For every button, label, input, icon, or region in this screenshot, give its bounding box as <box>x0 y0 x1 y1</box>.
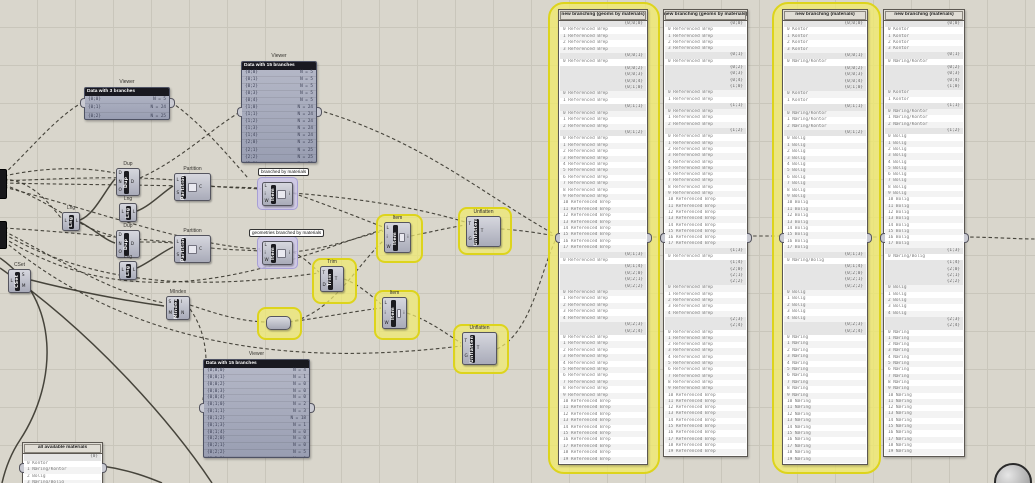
input-nub[interactable] <box>779 233 784 243</box>
component-partition-2[interactable]: Partition LSPartitionC <box>174 235 211 261</box>
wire[interactable] <box>140 242 173 243</box>
port-T[interactable]: T <box>465 339 468 344</box>
viewer-row: {0;0;0}N = 4 <box>204 368 309 375</box>
component-dup-1[interactable]: Dup DNODupD <box>116 168 140 194</box>
viewer-label: Viewer <box>241 53 317 59</box>
component-name: CSet <box>15 272 20 291</box>
viewer-row: {0;2;2}N = 5 <box>204 450 309 457</box>
port-i[interactable]: i <box>385 311 389 316</box>
port-i[interactable]: i <box>403 311 404 316</box>
wire[interactable] <box>4 169 115 176</box>
component-name: Dup <box>124 171 129 194</box>
viewer-row: {0;0;1}N = 1 <box>204 375 309 382</box>
port-N[interactable]: N <box>119 242 122 247</box>
component-item-2[interactable]: Item LiWItemi <box>382 297 407 327</box>
port-W[interactable]: W <box>265 199 269 204</box>
component-dup-2[interactable]: Dup DNODupD <box>116 230 140 256</box>
port-S[interactable]: S <box>177 253 180 258</box>
component-label: CSet <box>0 262 51 268</box>
component-name: Item <box>391 300 396 327</box>
port-D[interactable]: D <box>131 242 134 247</box>
port-T[interactable]: T <box>477 346 480 351</box>
wire[interactable] <box>4 228 173 242</box>
panel-title: all available materials <box>23 443 102 454</box>
component-name: Item <box>271 185 276 204</box>
output-nub[interactable] <box>310 403 315 413</box>
input-nub[interactable] <box>199 403 204 413</box>
component-name: Dup <box>124 233 129 256</box>
panel-item: 19 Næring <box>784 457 866 463</box>
input-nub[interactable] <box>880 233 885 243</box>
offscreen-component-stub[interactable] <box>0 221 7 249</box>
port-D[interactable]: D <box>131 180 134 185</box>
wire[interactable] <box>4 179 61 218</box>
viewer-row: {2;0}N = 25 <box>242 140 316 147</box>
component-partition-1[interactable]: Partition LSPartitionC <box>174 173 211 199</box>
component-icon <box>188 245 197 254</box>
wire[interactable] <box>4 178 173 181</box>
port-D[interactable]: D <box>323 283 326 288</box>
port-D[interactable]: D <box>119 171 122 176</box>
input-nub[interactable] <box>660 233 665 243</box>
component-name: MIndex <box>174 299 179 318</box>
wire[interactable] <box>211 186 261 189</box>
component-label: Lng <box>99 196 157 202</box>
component-name: Lng <box>126 206 131 220</box>
output-nub[interactable] <box>102 463 107 473</box>
panel-new-branching-materials-1[interactable]: new branching (materials){0;0;0}0 Kontor… <box>782 9 868 465</box>
panel-item: 19 Referenced Brep <box>560 457 646 463</box>
viewer-row: {2;1}N = 25 <box>242 148 316 155</box>
component-name: Lng <box>69 215 74 229</box>
wire[interactable] <box>31 280 164 306</box>
component-length-left[interactable]: Lng LLngL <box>62 212 80 229</box>
port-L[interactable]: L <box>387 226 391 231</box>
component-item-1[interactable]: Item LiWItemi <box>384 222 411 251</box>
component-label: Dup <box>96 223 160 229</box>
port-D[interactable]: D <box>119 233 122 238</box>
port-L[interactable]: L <box>122 210 124 215</box>
input-nub[interactable] <box>237 107 242 117</box>
port-T[interactable]: T <box>335 277 338 282</box>
panel-new-branching-geoms-2[interactable]: new branching (geoms by materials){0;0}0… <box>663 9 748 457</box>
wire[interactable] <box>102 466 162 483</box>
panel-title: new branching (geoms by materials) <box>559 10 647 21</box>
port-M[interactable]: M <box>169 311 173 316</box>
component-icon <box>277 190 286 199</box>
port-T[interactable]: T <box>481 229 484 234</box>
input-nub[interactable] <box>19 463 24 473</box>
viewer-title: Data with 15 branches <box>204 360 309 368</box>
viewer-label: Viewer <box>203 351 310 357</box>
grasshopper-canvas[interactable]: branched by materials geometries branche… <box>0 0 1035 483</box>
component-create-set[interactable]: CSet LCSetSM <box>8 269 31 291</box>
component-icon <box>399 233 405 242</box>
output-nub[interactable] <box>647 233 652 243</box>
port-i[interactable]: i <box>265 192 269 197</box>
panel-title: new branching (materials) <box>884 10 964 21</box>
component-label: Item <box>362 290 427 296</box>
port-S[interactable]: S <box>169 300 173 305</box>
offscreen-component-stub[interactable] <box>0 169 7 199</box>
input-nub[interactable] <box>555 233 560 243</box>
output-nub[interactable] <box>747 233 752 243</box>
viewer-row: {0;1;2}N = 18 <box>204 416 309 423</box>
viewer-row: {0;1;3}N = 1 <box>204 423 309 430</box>
component-label: Unflatten <box>442 325 517 331</box>
viewer-title: Data with 3 branches <box>85 88 169 96</box>
component-length-2[interactable]: Lng LLngL <box>119 261 137 278</box>
panel-all-available-materials[interactable]: all available materials{0}0 Kontor1 Næri… <box>22 442 103 483</box>
port-G[interactable]: G <box>465 354 468 359</box>
port-i[interactable]: i <box>407 235 408 240</box>
wire-relay[interactable] <box>266 316 291 330</box>
viewer-row: {2;2}N = 25 <box>242 155 316 162</box>
port-O[interactable]: O <box>119 188 122 193</box>
output-nub[interactable] <box>867 233 872 243</box>
port-L[interactable]: L <box>133 210 135 215</box>
component-name: Unflatten <box>474 219 479 245</box>
component-name: Trim <box>328 269 333 290</box>
port-C[interactable]: C <box>199 247 202 252</box>
viewer-row: {0;0;2}N = 0 <box>204 382 309 389</box>
port-L[interactable]: L <box>177 240 180 245</box>
component-length-1[interactable]: Lng LLngL <box>119 203 137 220</box>
group-label: branched by materials <box>258 168 309 176</box>
port-L[interactable]: L <box>76 219 78 224</box>
panel-title: new branching (geoms by materials) <box>664 10 747 21</box>
component-icon <box>397 309 401 318</box>
output-nub[interactable] <box>170 98 175 108</box>
component-name: Unflatten <box>470 335 475 363</box>
port-L[interactable]: L <box>177 178 180 183</box>
port-T[interactable]: T <box>323 271 326 276</box>
component-label: Lng <box>99 254 157 260</box>
component-trim-tree[interactable]: Trim TDTrimT <box>320 266 344 290</box>
viewer-title: Data with 15 branches <box>242 62 316 70</box>
viewer-row: {0;0}N = 5 <box>85 96 169 104</box>
component-unflatten-2[interactable]: Unflatten TGUnflattenT <box>462 332 497 363</box>
port-W[interactable]: W <box>387 245 391 250</box>
port-L[interactable]: L <box>265 184 269 189</box>
wire[interactable] <box>964 237 1035 239</box>
port-M[interactable]: M <box>22 284 26 289</box>
port-T[interactable]: T <box>469 222 472 227</box>
group-label: geometries branched by materials <box>249 229 324 237</box>
port-C[interactable]: C <box>199 185 202 190</box>
port-i[interactable]: i <box>289 192 290 197</box>
viewer-row: {2;3}N = 25 <box>242 162 316 163</box>
component-label: MIndex <box>146 289 210 295</box>
component-name: Item <box>393 225 398 251</box>
port-i[interactable]: i <box>289 251 290 256</box>
viewer-data-3-branches[interactable]: Viewer Data with 3 branches{0;0}N = 5{0;… <box>84 87 170 118</box>
viewer-row: {0;2;3}N = 0 <box>204 457 309 458</box>
port-S[interactable]: S <box>177 191 180 196</box>
component-member-index[interactable]: MIndex SMMIndexIN <box>166 296 190 318</box>
port-N[interactable]: N <box>119 180 122 185</box>
component-label: Lng <box>42 205 100 211</box>
component-icon <box>277 249 286 258</box>
panel-title: new branching (materials) <box>783 10 867 21</box>
input-nub[interactable] <box>80 98 85 108</box>
wire[interactable] <box>293 193 383 227</box>
port-L[interactable]: L <box>65 219 67 224</box>
viewer-row: {0;1}N = 24 <box>85 104 169 112</box>
wire[interactable] <box>4 102 83 174</box>
port-W[interactable]: W <box>385 321 389 326</box>
port-W[interactable]: W <box>265 258 269 263</box>
port-L[interactable]: L <box>133 268 135 273</box>
port-i[interactable]: i <box>265 251 269 256</box>
wire[interactable] <box>190 305 265 322</box>
component-item-B[interactable]: LiWItemi <box>262 241 293 263</box>
panel-item: 19 Næring <box>885 449 963 455</box>
wire[interactable] <box>289 308 381 322</box>
port-N[interactable]: N <box>181 311 184 316</box>
port-L[interactable]: L <box>122 268 124 273</box>
port-L[interactable]: L <box>11 279 13 284</box>
component-label: Partition <box>154 228 231 234</box>
port-S[interactable]: S <box>22 273 26 278</box>
port-i[interactable]: i <box>387 235 391 240</box>
output-nub[interactable] <box>317 107 322 117</box>
viewer-row: {0;2}N = 25 <box>85 113 169 120</box>
panel-item: 19 Referenced Brep <box>665 449 746 455</box>
panel-new-branching-geoms-1[interactable]: new branching (geoms by materials){0;0;0… <box>558 9 648 465</box>
panel-new-branching-materials-2[interactable]: new branching (materials){0;0}0 Kontor1 … <box>883 9 965 457</box>
component-name: Item <box>271 244 276 263</box>
component-name: Partition <box>181 176 186 199</box>
component-name: Partition <box>181 238 186 261</box>
port-I[interactable]: I <box>181 300 184 305</box>
viewer-data-15-branches-bottom[interactable]: Viewer Data with 15 branches{0;0;0}N = 4… <box>203 359 310 456</box>
component-icon <box>188 183 197 192</box>
component-label: Unflatten <box>446 209 521 215</box>
component-label: Trim <box>300 259 364 265</box>
component-name: Lng <box>126 264 131 278</box>
component-label: Dup <box>96 161 160 167</box>
component-unflatten-1[interactable]: Unflatten TGUnflattenT <box>466 216 501 245</box>
port-L[interactable]: L <box>265 243 269 248</box>
viewer-label: Viewer <box>84 79 170 85</box>
viewer-data-15-branches-top[interactable]: Viewer Data with 15 branches{0;0}N = 5{0… <box>241 61 317 161</box>
output-nub[interactable] <box>964 233 969 243</box>
component-item-A[interactable]: LiWItemi <box>262 182 293 204</box>
viewer-row: {0;0}N = 5 <box>242 70 316 77</box>
port-G[interactable]: G <box>469 237 472 242</box>
port-L[interactable]: L <box>385 301 389 306</box>
component-label: Partition <box>154 166 231 172</box>
viewer-row: {0;1;1}N = 3 <box>204 409 309 416</box>
component-label: Item <box>364 215 431 221</box>
